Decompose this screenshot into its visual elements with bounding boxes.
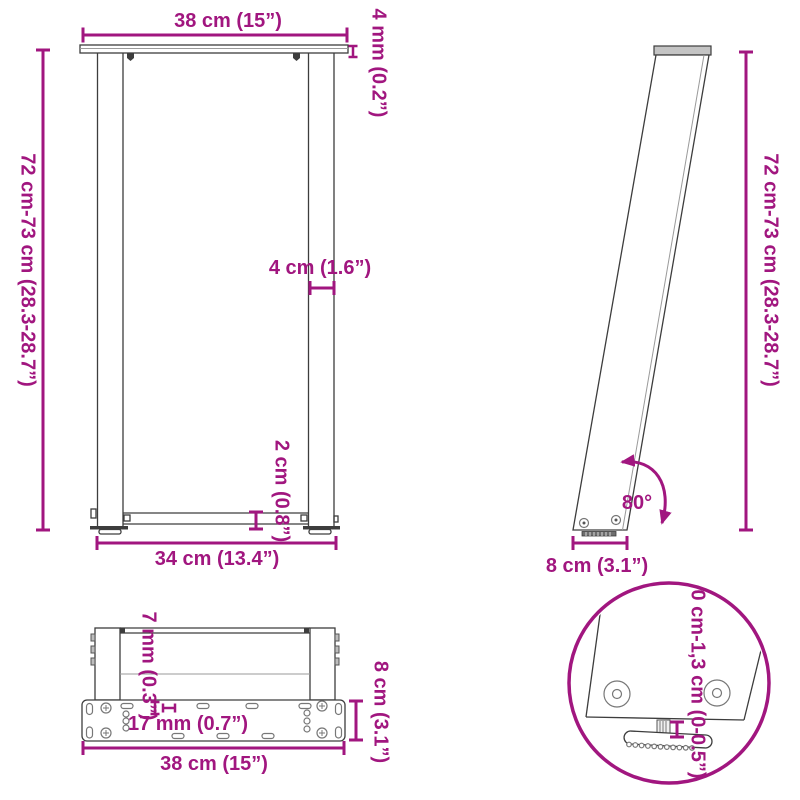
label-angle: 80° [622,492,652,514]
front-view: 38 cm (15”) 4 mm (0.2”) 72 cm-73 cm (28.… [17,9,390,570]
label-leg-width: 4 cm (1.6”) [269,257,371,279]
label-base-depth: 8 cm (3.1”) [546,555,648,577]
front-view-drawing [80,45,348,534]
foot-left [99,530,121,535]
mount-screw-left [127,53,134,61]
dim-leg-width: 4 cm (1.6”) [269,257,371,295]
side-leg [573,55,709,530]
dim-side-height: 72 cm-73 cm (28.3-28.7”) [739,52,782,530]
label-plate-thickness: 4 mm (0.2”) [368,9,390,118]
label-side-height: 72 cm-73 cm (28.3-28.7”) [760,153,782,386]
side-top-plate [654,46,711,55]
detail-circle [569,583,769,783]
label-plate-width: 38 cm (15”) [160,753,268,775]
label-front-top-width: 38 cm (15”) [174,10,282,32]
label-plate-edge: 7 mm (0.3”) [138,612,160,721]
post-right [310,628,335,700]
dim-front-height: 72 cm-73 cm (28.3-28.7”) [17,50,50,530]
leg-clip-right [334,516,338,522]
label-front-height: 72 cm-73 cm (28.3-28.7”) [17,153,39,386]
side-foot [582,532,616,537]
dim-inner-width: 34 cm (13.4”) [97,536,336,570]
diagram-canvas: 38 cm (15”) 4 mm (0.2”) 72 cm-73 cm (28.… [0,0,800,800]
side-view: 72 cm-73 cm (28.3-28.7”) 80° 8 cm (3.1”) [546,46,782,577]
dim-plate-width: 38 cm (15”) [83,741,344,775]
label-inner-width: 34 cm (13.4”) [155,548,280,570]
label-adjustment-range: 0 cm-1,3 cm (0-0.5”) [687,590,709,779]
bottom-view: 7 mm (0.3”) 17 mm (0.7”) 8 cm (3.1”) 38 … [82,612,392,775]
foot-right [309,530,331,535]
mount-screw-right [293,53,300,61]
label-bar-thickness: 2 cm (0.8”) [271,440,293,542]
dim-base-depth: 8 cm (3.1”) [546,536,648,577]
label-plate-depth: 8 cm (3.1”) [370,661,392,763]
dim-bar-thickness: 2 cm (0.8”) [249,440,293,542]
dim-plate-depth: 8 cm (3.1”) [349,661,392,763]
leg-clip-left [91,509,96,518]
label-hole-spacing: 17 mm (0.7”) [128,713,248,735]
dim-plate-edge: 7 mm (0.3”) [138,612,160,721]
post-left [95,628,120,700]
crossbar-clip-left [124,515,130,521]
detail-view: 0 cm-1,3 cm (0-0.5”) [569,583,769,783]
dim-plate-thickness: 4 mm (0.2”) [349,9,390,118]
crossbar-clip-right [301,515,307,521]
dim-front-top-width: 38 cm (15”) [83,10,347,43]
